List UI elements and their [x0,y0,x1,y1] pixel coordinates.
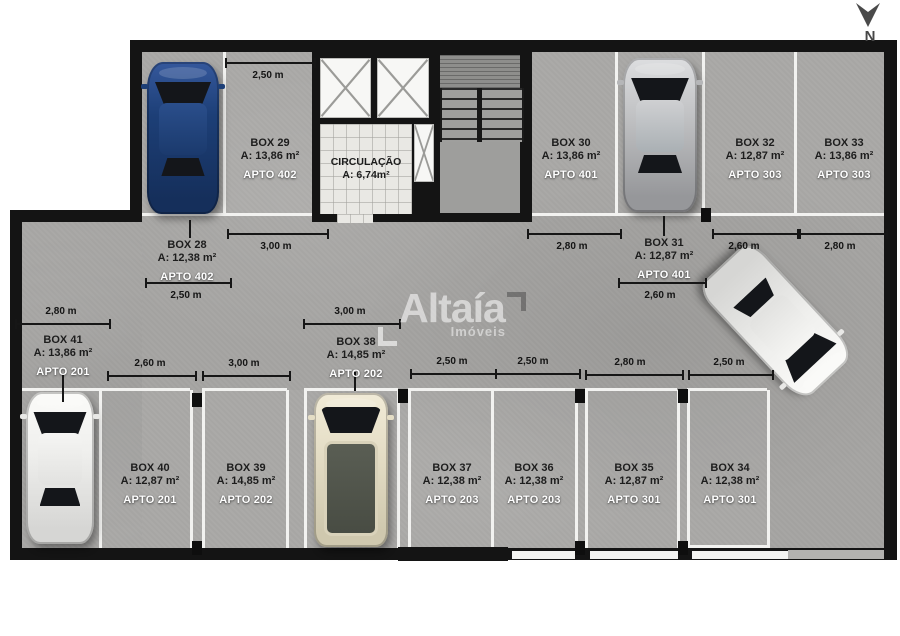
pillar [398,389,408,403]
dimension-label: 3,00 m [334,306,365,317]
dimension-line [202,371,291,381]
dimension-line [227,229,329,239]
box-apto: APTO 401 [542,169,601,181]
dimension-line [495,369,581,379]
box-37-label: BOX 37 A: 12,38 m² APTO 203 [423,462,482,506]
box-apto: APTO 301 [701,494,760,506]
logo-corner-bracket-top-right [507,292,526,311]
box-apto: APTO 202 [327,368,386,380]
pillar [678,541,688,555]
silver-car [623,58,697,212]
stair-divider-wall [477,88,482,142]
stall-divider [397,390,400,548]
box-title: BOX 28 [158,239,217,252]
dimension-label: 2,50 m [517,356,548,367]
car-rear-window [638,155,682,173]
box-area: A: 14,85 m² [327,349,386,362]
dimension-label: 2,60 m [134,358,165,369]
box-apto: APTO 202 [217,494,276,506]
circulation-title: CIRCULAÇÃO [331,156,402,169]
box-29-label: BOX 29 A: 13,86 m² APTO 402 [241,137,300,181]
elevator-x-icon [320,58,371,118]
box-area: A: 13,86 m² [241,150,300,163]
outer-wall-right [884,40,897,560]
box-38-label: BOX 38 A: 14,85 m² APTO 202 [327,336,386,380]
leader-line-box28 [189,220,191,238]
car-mirror [696,80,703,85]
dimension-line [225,58,316,68]
pillar [575,389,585,403]
box-title: BOX 39 [217,462,276,475]
car-mirror [93,414,100,419]
stall-front-line [15,388,190,391]
shaft-x-icon [414,124,434,182]
elevator-x-icon [377,58,429,118]
car-mirror [141,84,148,89]
stall-divider [794,52,797,213]
outer-wall-left-lower [10,210,22,560]
box-33-label: BOX 33 A: 13,86 m² APTO 303 [815,137,874,181]
box-area: A: 13,86 m² [542,150,601,163]
pillar [701,208,711,222]
bottom-wall-opening [692,551,788,559]
van-mirror [308,415,315,420]
dimension-label: 2,50 m [436,356,467,367]
parking-floor-plan: CIRCULAÇÃO A: 6,74m² [0,0,900,636]
stall-divider [491,390,494,548]
box-area: A: 12,87 m² [121,475,180,488]
box-title: BOX 32 [726,137,785,150]
box-34-label: BOX 34 A: 12,38 m² APTO 301 [701,462,760,506]
car-rear-window [40,488,81,506]
box-36-label: BOX 36 A: 12,38 m² APTO 203 [505,462,564,506]
box-area: A: 12,38 m² [423,475,482,488]
stall-divider [408,390,411,548]
stall-divider [702,52,705,213]
white-car [26,392,94,544]
dimension-label: 2,50 m [252,70,283,81]
north-label: N [860,28,880,45]
box-title: BOX 29 [241,137,300,150]
box-area: A: 14,85 m² [217,475,276,488]
stall-front-line [585,388,677,391]
van-mirror [387,415,394,420]
box-30-label: BOX 30 A: 13,86 m² APTO 401 [542,137,601,181]
stair-upper-landing [440,55,520,88]
stall-divider [767,390,770,548]
dimension-line [107,371,197,381]
car-mirror [617,80,624,85]
dimension-line [688,370,774,380]
elevator-shaft-1 [320,58,371,118]
north-arrow-icon [853,2,883,28]
car-windshield [155,82,211,105]
box-area: A: 13,86 m² [34,347,93,360]
dimension-label: 2,60 m [728,241,759,252]
pillar [192,393,202,407]
box-31-label: BOX 31 A: 12,87 m² APTO 401 [635,237,694,281]
pillar [575,541,585,555]
box-title: BOX 36 [505,462,564,475]
stall-front-line [687,388,767,391]
stall-divider [202,390,205,548]
box-title: BOX 37 [423,462,482,475]
dimension-label: 2,80 m [556,241,587,252]
pillar [192,541,202,555]
leader-line-box31 [663,216,665,236]
dimension-label: 3,00 m [260,241,291,252]
car-roof [159,103,207,155]
bottom-wall-opening [590,551,678,559]
circulation-door-opening [337,214,373,223]
dimension-line [527,229,622,239]
dimension-line [15,319,111,329]
service-shaft [414,124,434,182]
car-roof [636,100,685,152]
box-area: A: 12,38 m² [505,475,564,488]
blue-car [147,62,219,214]
stall-divider [286,390,289,548]
box-40-label: BOX 40 A: 12,87 m² APTO 201 [121,462,180,506]
logo-watermark: Altaía Imóveis [392,288,512,339]
stall-divider [677,390,680,548]
box-28-label: BOX 28 A: 12,38 m² APTO 402 [158,239,217,283]
logo-corner-bracket-bottom-left [378,327,397,346]
box-title: BOX 30 [542,137,601,150]
car-roof [38,433,83,485]
dimension-line [145,278,232,288]
box-area: A: 12,87 m² [726,150,785,163]
dimension-label: 3,00 m [228,358,259,369]
box-title: BOX 41 [34,334,93,347]
outer-wall-left-upper [130,40,142,222]
box-title: BOX 40 [121,462,180,475]
box-apto: APTO 303 [815,169,874,181]
dimension-label: 2,80 m [614,357,645,368]
elevator-shaft-2 [377,58,429,118]
circulation-area: CIRCULAÇÃO A: 6,74m² [320,124,412,214]
car-mirror [218,84,225,89]
pillar [678,389,688,403]
leader-line-box41 [62,374,64,402]
outer-wall-top [130,40,897,52]
dimension-label: 2,60 m [644,290,675,301]
box-title: BOX 34 [701,462,760,475]
logo-brand-text: Altaía [392,288,512,328]
stall-front-line [202,388,287,391]
stairs [440,88,524,142]
box-title: BOX 38 [327,336,386,349]
box-area: A: 12,38 m² [701,475,760,488]
box-apto: APTO 402 [241,169,300,181]
car-rear-window [161,158,204,176]
box-area: A: 13,86 m² [815,150,874,163]
stall-divider [190,390,193,548]
stair-lower-landing [440,142,520,213]
box-apto: APTO 203 [505,494,564,506]
bottom-wall-opening [512,551,575,559]
box-title: BOX 35 [605,462,664,475]
box-32-label: BOX 32 A: 12,87 m² APTO 303 [726,137,785,181]
dimension-line [712,229,801,239]
stall-divider [585,390,588,548]
top-right-parking-zone [532,52,884,213]
stall-divider [575,390,578,548]
box-35-label: BOX 35 A: 12,87 m² APTO 301 [605,462,664,506]
dimension-label: 2,50 m [170,290,201,301]
box-title: BOX 31 [635,237,694,250]
dimension-line [618,278,707,288]
cream-van [314,393,388,547]
box-title: BOX 33 [815,137,874,150]
box-apto: APTO 201 [34,366,93,378]
box-apto: APTO 303 [726,169,785,181]
dimension-label: 2,50 m [713,357,744,368]
box-area: A: 12,87 m² [605,475,664,488]
van-roof [324,441,379,536]
box-area: A: 12,87 m² [635,250,694,263]
bottom-wall-ledge [788,550,884,559]
dimension-label: 2,80 m [824,241,855,252]
bottom-wall-thick-segment [398,547,508,561]
stall-divider [304,390,307,548]
stall-divider [223,52,226,213]
dimension-line [797,229,888,239]
van-windshield [321,407,382,433]
stall-divider [615,52,618,213]
dimension-line [585,370,684,380]
circulation-area-value: A: 6,74m² [342,169,389,182]
box-41-label: BOX 41 A: 13,86 m² APTO 201 [34,334,93,378]
car-windshield [33,412,86,435]
box-area: A: 12,38 m² [158,252,217,265]
outer-wall-step [10,210,142,222]
car-windshield [631,78,689,101]
dimension-label: 2,80 m [45,306,76,317]
box-apto: APTO 201 [121,494,180,506]
car-mirror [20,414,27,419]
box-39-label: BOX 39 A: 14,85 m² APTO 202 [217,462,276,506]
dimension-line [410,369,497,379]
stall-divider [687,390,690,548]
box-apto: APTO 301 [605,494,664,506]
box-apto: APTO 203 [423,494,482,506]
stall-front-line [304,388,398,391]
